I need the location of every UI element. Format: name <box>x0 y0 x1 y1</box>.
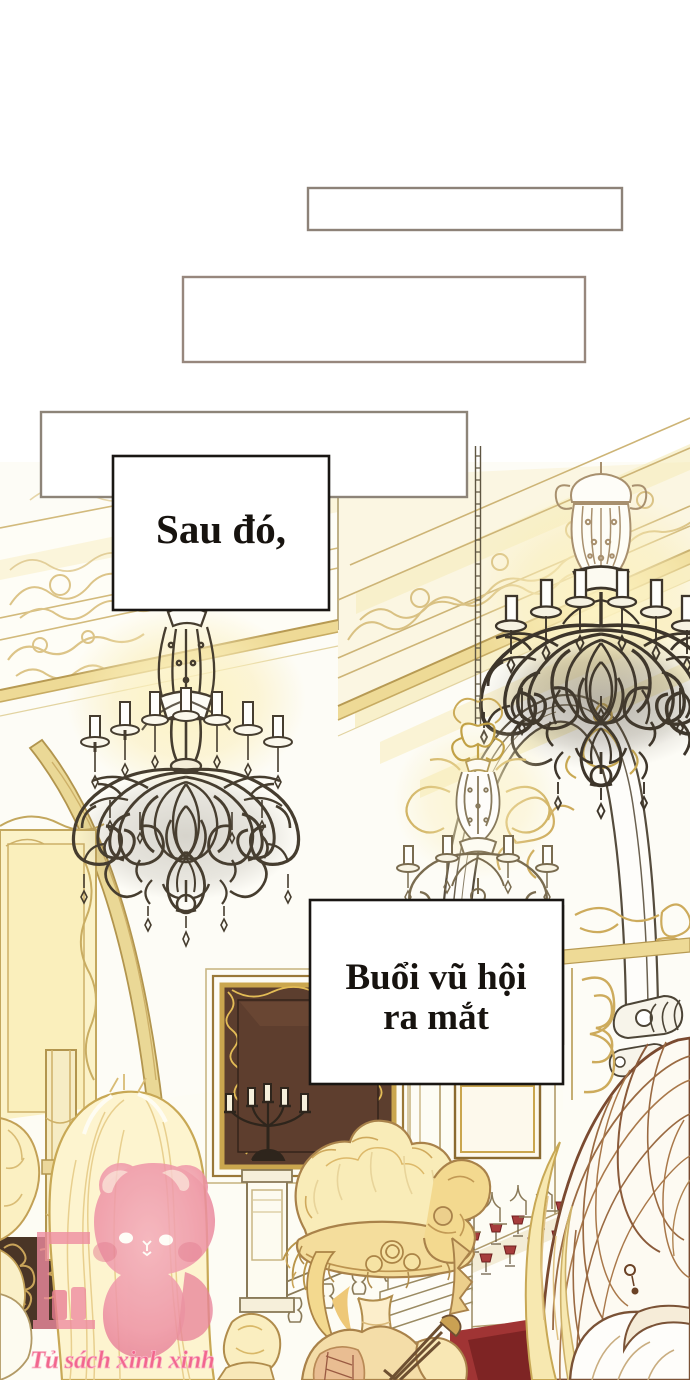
svg-text:ra mắt: ra mắt <box>383 997 489 1038</box>
svg-text:Buổi vũ hội: Buổi vũ hội <box>346 957 527 998</box>
svg-text:Tủ sách xinh xinh: Tủ sách xinh xinh <box>30 1347 215 1374</box>
svg-text:Sau đó,: Sau đó, <box>156 506 286 552</box>
